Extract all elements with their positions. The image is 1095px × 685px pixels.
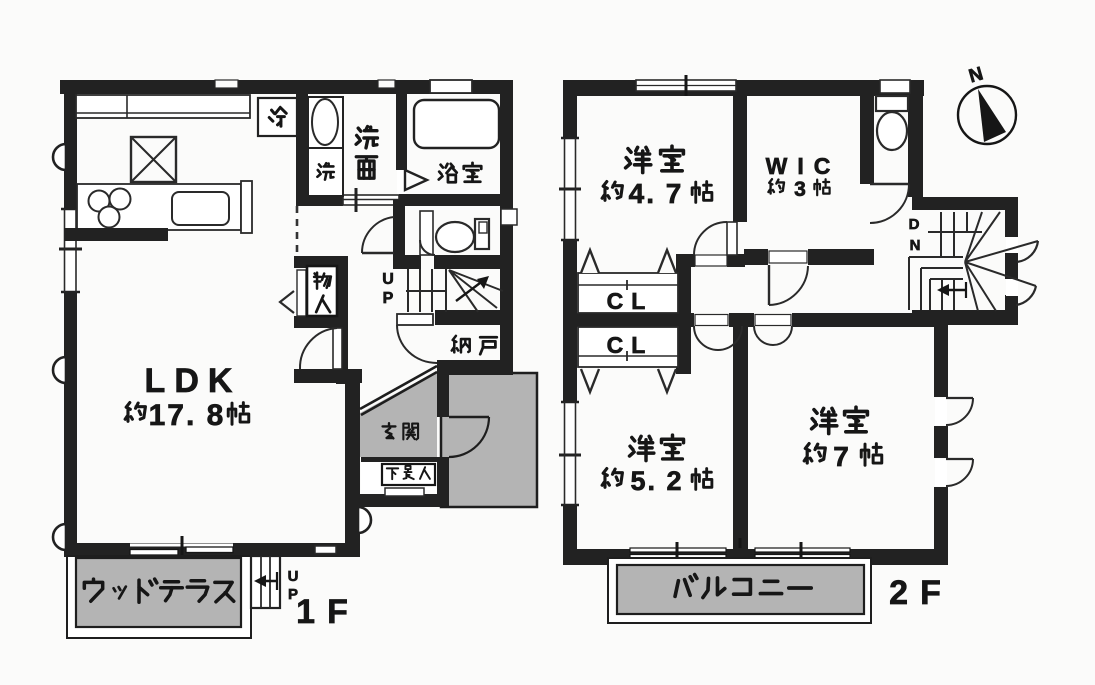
svg-text:17. 8: 17. 8 [149,399,226,432]
svg-text:U: U [382,271,394,288]
svg-text:U: U [288,568,299,585]
svg-text:4. 7: 4. 7 [629,178,684,209]
svg-text:5. 2: 5. 2 [630,466,683,496]
svg-text:1F: 1F [296,593,360,631]
svg-text:P: P [383,290,394,307]
svg-text:7: 7 [833,441,849,472]
svg-text:3: 3 [794,178,806,201]
svg-text:2F: 2F [889,574,953,612]
svg-text:CL: CL [607,288,654,314]
svg-text:CL: CL [607,332,654,358]
svg-text:N: N [910,237,921,254]
svg-text:LDK: LDK [145,362,242,400]
svg-text:WIC: WIC [766,153,841,179]
svg-text:D: D [909,216,920,233]
